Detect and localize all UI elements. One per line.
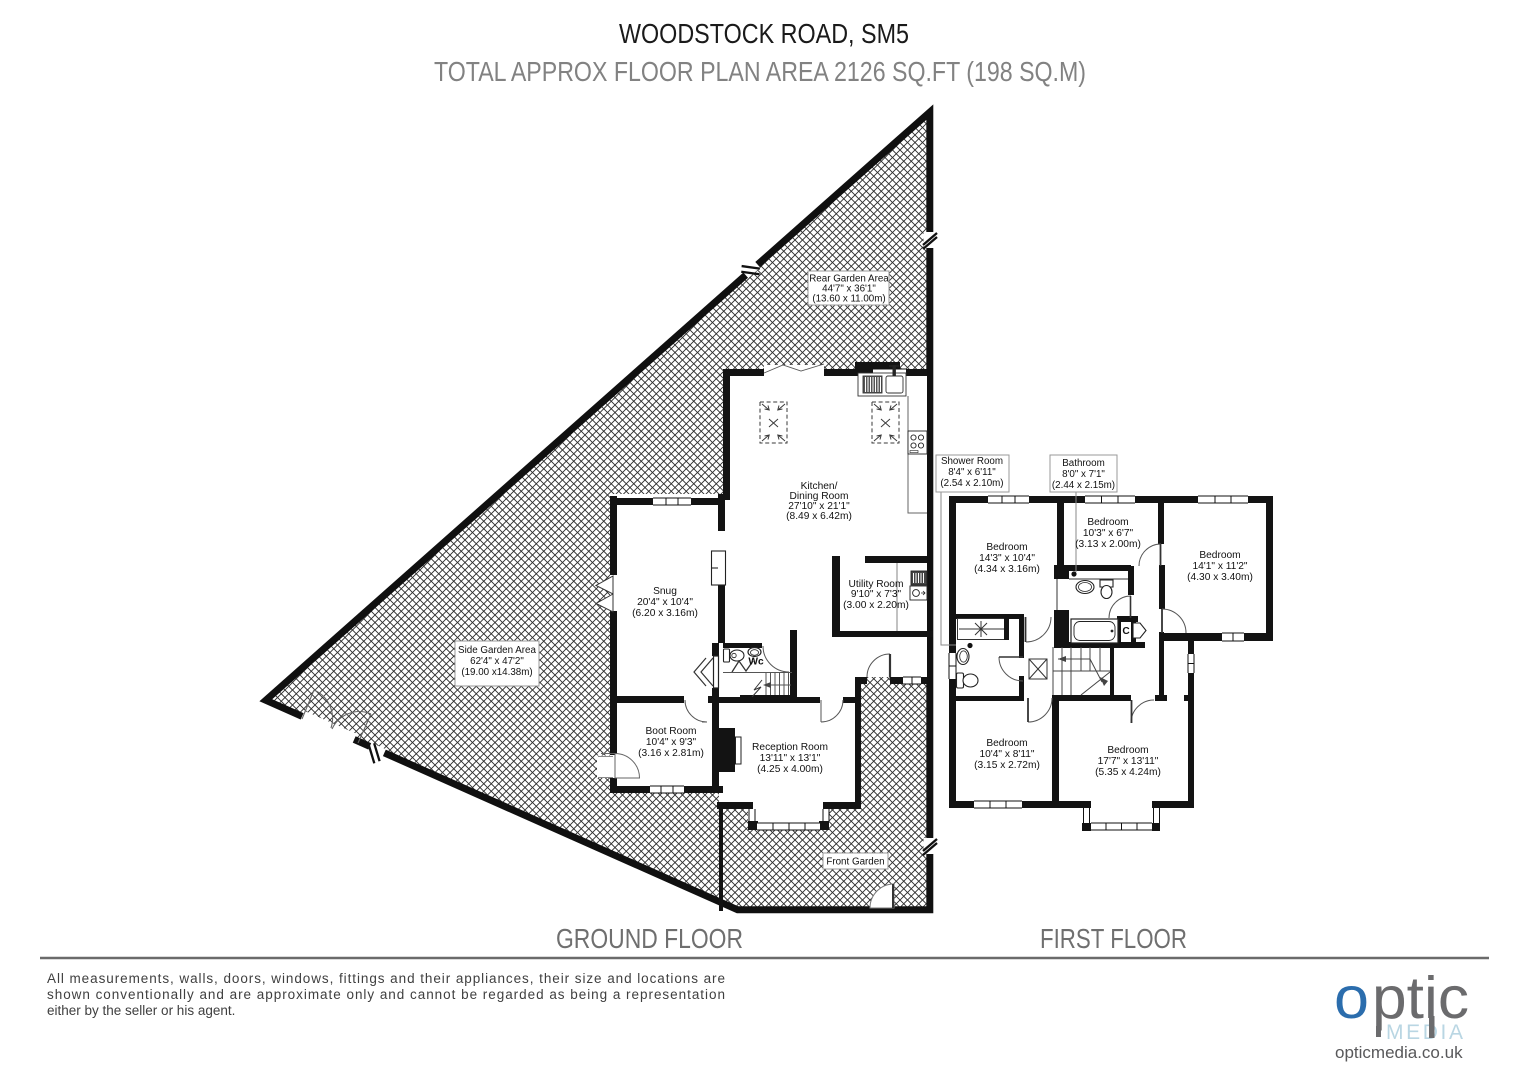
svg-text:Bedroom: Bedroom bbox=[1199, 550, 1240, 561]
svg-text:(4.30 x 3.40m): (4.30 x 3.40m) bbox=[1187, 572, 1253, 583]
svg-text:Bedroom: Bedroom bbox=[1087, 517, 1128, 528]
svg-text:Snug: Snug bbox=[653, 586, 677, 597]
svg-text:(3.00 x 2.20m): (3.00 x 2.20m) bbox=[843, 600, 909, 611]
svg-text:MEDIA: MEDIA bbox=[1386, 1021, 1463, 1044]
svg-text:13'11" x 13'1": 13'11" x 13'1" bbox=[760, 753, 821, 764]
svg-text:Wc: Wc bbox=[748, 657, 764, 668]
svg-text:GROUND FLOOR: GROUND FLOOR bbox=[556, 923, 743, 954]
svg-text:shown conventionally and are a: shown conventionally and are approximate… bbox=[47, 987, 725, 1002]
svg-text:Bedroom: Bedroom bbox=[986, 542, 1027, 553]
svg-text:10'4" x 9'3": 10'4" x 9'3" bbox=[646, 737, 697, 748]
svg-text:Side Garden Area: Side Garden Area bbox=[458, 645, 536, 656]
svg-text:14'3" x 10'4": 14'3" x 10'4" bbox=[979, 553, 1035, 564]
svg-text:Front Garden: Front Garden bbox=[826, 857, 884, 868]
svg-text:(5.35 x 4.24m): (5.35 x 4.24m) bbox=[1095, 767, 1161, 778]
svg-text:Shower Room: Shower Room bbox=[941, 456, 1003, 467]
svg-text:8'0" x 7'1": 8'0" x 7'1" bbox=[1062, 469, 1105, 480]
svg-text:Boot Room: Boot Room bbox=[646, 726, 697, 737]
svg-text:Bedroom: Bedroom bbox=[986, 738, 1027, 749]
svg-text:TOTAL APPROX FLOOR PLAN AREA 2: TOTAL APPROX FLOOR PLAN AREA 2126 SQ.FT … bbox=[434, 56, 1086, 87]
svg-text:20'4" x 10'4": 20'4" x 10'4" bbox=[637, 597, 693, 608]
svg-text:(2.44 x 2.15m): (2.44 x 2.15m) bbox=[1052, 480, 1115, 491]
svg-text:(3.15 x 2.72m): (3.15 x 2.72m) bbox=[974, 760, 1040, 771]
svg-text:opticmedia.co.uk: opticmedia.co.uk bbox=[1335, 1043, 1463, 1062]
svg-text:FIRST FLOOR: FIRST FLOOR bbox=[1040, 923, 1187, 954]
svg-text:Reception Room: Reception Room bbox=[752, 742, 828, 753]
svg-text:Bedroom: Bedroom bbox=[1107, 745, 1148, 756]
svg-text:Bathroom: Bathroom bbox=[1062, 458, 1104, 469]
svg-text:17'7" x 13'11": 17'7" x 13'11" bbox=[1098, 756, 1159, 767]
svg-text:o: o bbox=[1334, 965, 1369, 1031]
svg-text:either by the seller or his ag: either by the seller or his agent. bbox=[47, 1003, 235, 1018]
svg-text:14'1" x 11'2": 14'1" x 11'2" bbox=[1192, 561, 1247, 572]
svg-text:(13.60 x 11.00m): (13.60 x 11.00m) bbox=[812, 294, 885, 305]
svg-text:(4.25 x 4.00m): (4.25 x 4.00m) bbox=[757, 764, 823, 775]
svg-text:62'4" x 47'2": 62'4" x 47'2" bbox=[470, 656, 524, 667]
svg-text:10'4" x 8'11": 10'4" x 8'11" bbox=[979, 749, 1034, 760]
svg-text:C: C bbox=[1122, 626, 1130, 637]
svg-text:(19.00 x14.38m): (19.00 x14.38m) bbox=[461, 667, 532, 678]
svg-text:(6.20 x 3.16m): (6.20 x 3.16m) bbox=[632, 608, 698, 619]
svg-text:(8.49 x 6.42m): (8.49 x 6.42m) bbox=[786, 511, 852, 522]
svg-text:(2.54 x 2.10m): (2.54 x 2.10m) bbox=[940, 478, 1003, 489]
svg-text:(3.16 x 2.81m): (3.16 x 2.81m) bbox=[638, 748, 704, 759]
svg-text:10'3" x 6'7": 10'3" x 6'7" bbox=[1083, 528, 1134, 539]
svg-text:All measurements, walls, doors: All measurements, walls, doors, windows,… bbox=[47, 971, 725, 986]
svg-text:(3.13 x 2.00m): (3.13 x 2.00m) bbox=[1075, 539, 1141, 550]
svg-text:(4.34 x 3.16m): (4.34 x 3.16m) bbox=[974, 564, 1040, 575]
svg-text:8'4" x 6'11": 8'4" x 6'11" bbox=[948, 467, 996, 478]
svg-text:WOODSTOCK ROAD, SM5: WOODSTOCK ROAD, SM5 bbox=[619, 18, 909, 49]
svg-text:9'10" x 7'3": 9'10" x 7'3" bbox=[851, 589, 902, 600]
